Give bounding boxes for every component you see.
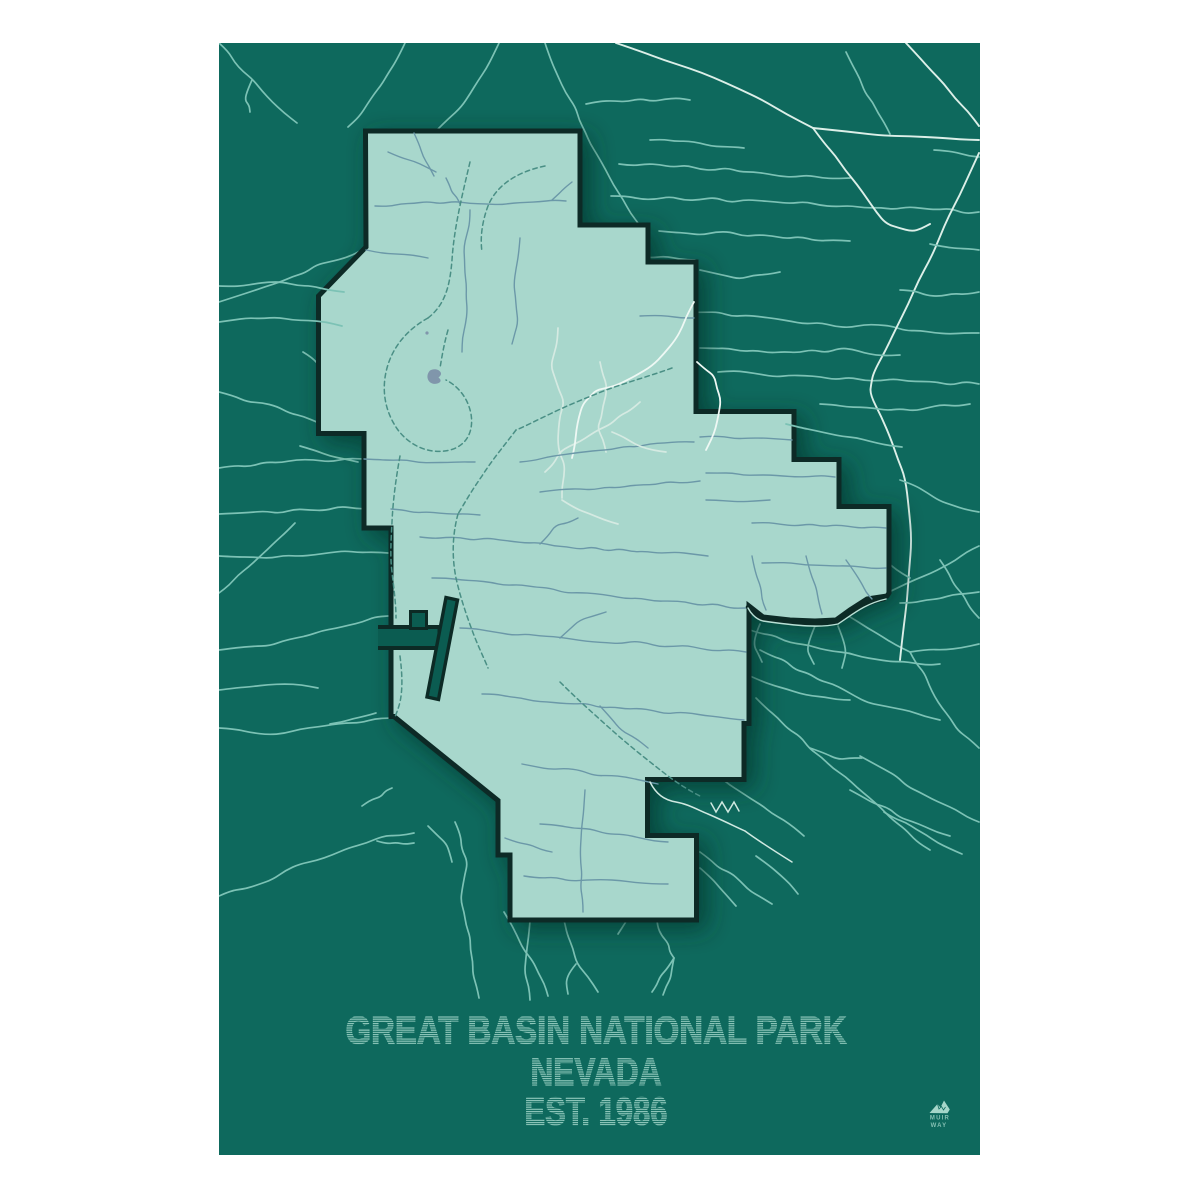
svg-text:GREAT BASIN NATIONAL PARK: GREAT BASIN NATIONAL PARK bbox=[346, 1010, 847, 1053]
svg-text:EST. 1986: EST. 1986 bbox=[525, 1091, 668, 1134]
svg-text:NEVADA: NEVADA bbox=[531, 1051, 662, 1094]
svg-text:MUIR: MUIR bbox=[930, 1116, 950, 1122]
svg-text:WAY: WAY bbox=[931, 1123, 948, 1129]
